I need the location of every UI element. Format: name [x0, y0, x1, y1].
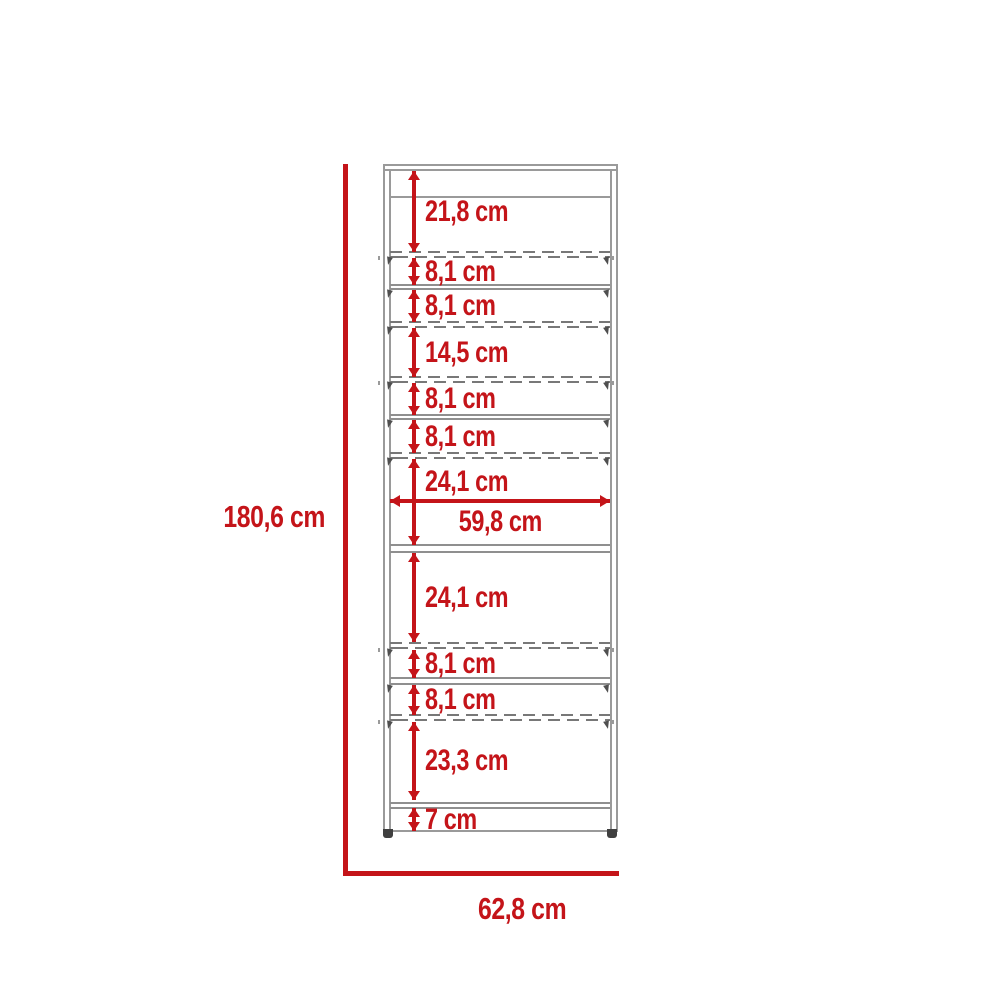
inner-width-label-wrap: 59,8 cm: [390, 507, 610, 537]
dimension-arrow-8-1-d: 8,1 cm: [412, 420, 416, 453]
pin-mark: [378, 720, 380, 724]
dashed-shelf-line: [390, 452, 610, 454]
shelf-line: [390, 288, 610, 290]
cabinet-foot: [383, 829, 393, 838]
dimension-label: 8,1 cm: [425, 291, 496, 321]
dimension-arrow-23-3: 23,3 cm: [412, 722, 416, 800]
dimension-label: 21,8 cm: [425, 197, 508, 227]
pin-mark: [612, 256, 614, 260]
dimension-label: 14,5 cm: [425, 338, 508, 368]
dimension-label: 8,1 cm: [425, 685, 496, 715]
dimension-arrow-8-1-f: 8,1 cm: [412, 685, 416, 715]
overall-height-label-wrap: 180,6 cm: [0, 501, 325, 532]
dimension-diagram: 21,8 cm 8,1 cm 8,1 cm 14,5 cm 8,1 cm 8,1…: [0, 0, 1000, 1000]
shelf-pin-icon: [385, 419, 393, 428]
shelf-line: [390, 284, 610, 286]
shelf-pin-icon: [385, 326, 393, 335]
shelf-line: [390, 544, 610, 546]
dimension-arrow-8-1-e: 8,1 cm: [412, 650, 416, 678]
dashed-shelf-line: [390, 647, 610, 649]
dimension-label: 7 cm: [425, 805, 477, 835]
overall-width-dimension-line: [343, 871, 619, 876]
dimension-arrow-7: 7 cm: [412, 808, 416, 831]
overall-width-label: 62,8 cm: [478, 893, 566, 924]
shelf-pin-icon: [385, 684, 393, 693]
dimension-arrow-24-1-b: 24,1 cm: [412, 553, 416, 642]
pin-mark: [612, 720, 614, 724]
inner-width-label: 59,8 cm: [458, 507, 541, 537]
pin-mark: [378, 256, 380, 260]
dimension-label: 24,1 cm: [425, 583, 508, 613]
shelf-line: [390, 418, 610, 420]
shelf-pin-icon: [385, 457, 393, 466]
dimension-arrow-21-8: 21,8 cm: [412, 171, 416, 252]
overall-height-label: 180,6 cm: [223, 501, 325, 532]
pin-mark: [612, 381, 614, 385]
dashed-shelf-line: [390, 251, 610, 253]
dashed-shelf-line: [390, 714, 610, 716]
dimension-label: 8,1 cm: [425, 649, 496, 679]
shelf-line: [390, 677, 610, 679]
cabinet-right-outer-edge: [616, 164, 618, 832]
dimension-arrow-8-1-c: 8,1 cm: [412, 383, 416, 415]
dashed-shelf-line: [390, 256, 610, 258]
cabinet-top-outer-edge: [383, 164, 618, 166]
dashed-shelf-line: [390, 642, 610, 644]
dimension-label: 8,1 cm: [425, 422, 496, 452]
shelf-line: [390, 551, 610, 553]
dimension-label: 24,1 cm: [425, 467, 508, 497]
pin-mark: [612, 648, 614, 652]
dashed-shelf-line: [390, 457, 610, 459]
dimension-label: 8,1 cm: [425, 384, 496, 414]
dimension-arrow-8-1-b: 8,1 cm: [412, 290, 416, 322]
shelf-pin-icon: [385, 381, 393, 390]
cabinet-foot: [607, 829, 617, 838]
dimension-arrow-8-1-a: 8,1 cm: [412, 258, 416, 285]
shelf-pin-icon: [385, 720, 393, 729]
dashed-shelf-line: [390, 719, 610, 721]
dashed-shelf-line: [390, 326, 610, 328]
shelf-line: [390, 807, 610, 809]
dashed-shelf-line: [390, 381, 610, 383]
shelf-pin-icon: [385, 256, 393, 265]
shelf-line: [390, 683, 610, 685]
dashed-shelf-line: [390, 321, 610, 323]
shelf-pin-icon: [385, 289, 393, 298]
overall-width-label-wrap: 62,8 cm: [392, 893, 652, 924]
dimension-label: 23,3 cm: [425, 746, 508, 776]
shelf-line: [390, 802, 610, 804]
pin-mark: [378, 381, 380, 385]
shelf-line: [390, 414, 610, 416]
dimension-arrow-14-5: 14,5 cm: [412, 328, 416, 377]
pin-mark: [378, 648, 380, 652]
overall-height-dimension-line: [343, 164, 348, 876]
dimension-arrow-inner-width: [390, 499, 610, 503]
dashed-shelf-line: [390, 376, 610, 378]
cabinet-right-inner-edge: [610, 169, 612, 830]
shelf-pin-icon: [385, 648, 393, 657]
dimension-label: 8,1 cm: [425, 257, 496, 287]
